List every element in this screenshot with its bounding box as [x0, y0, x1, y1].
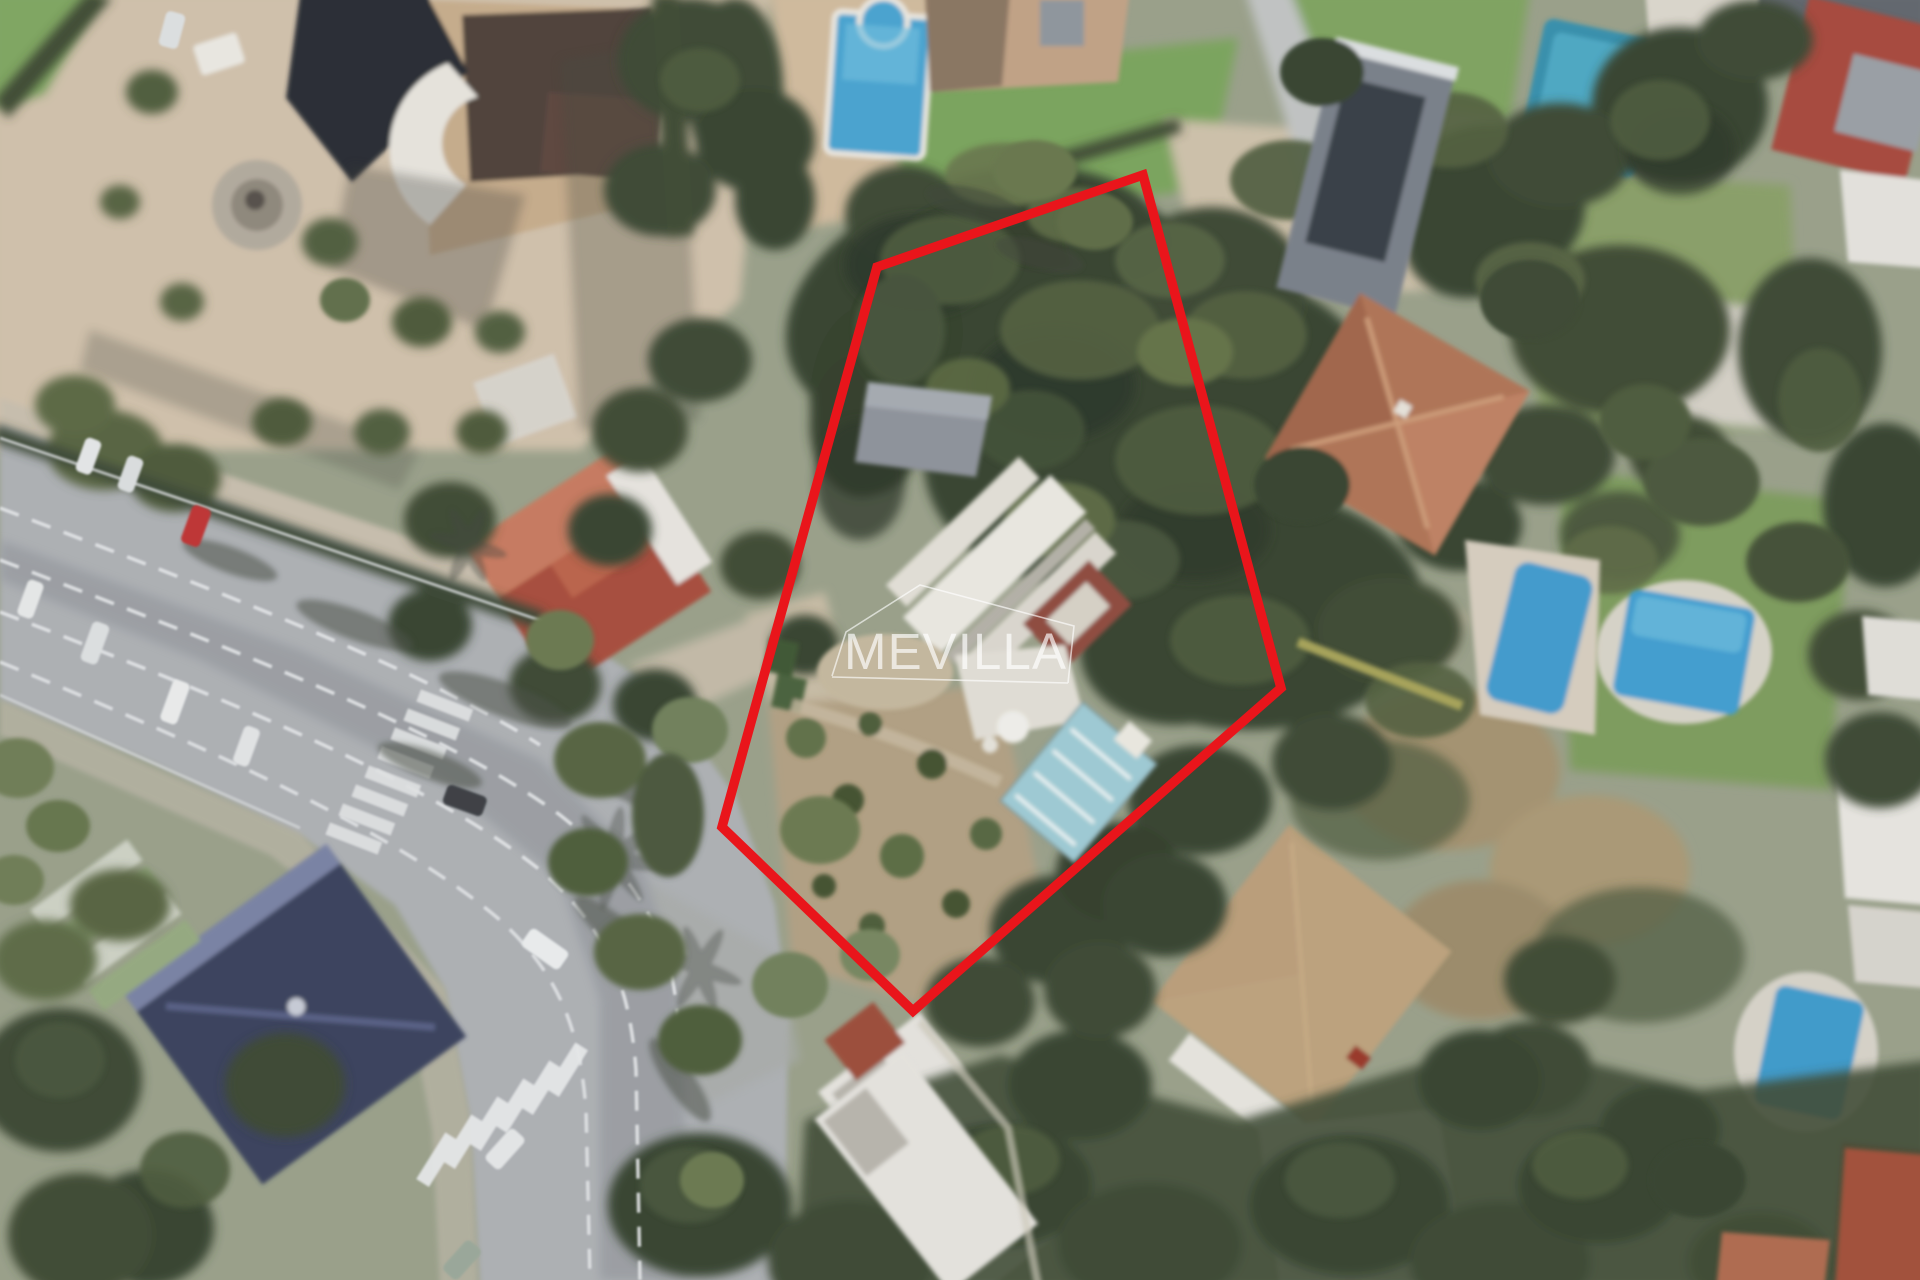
svg-text:MEVILLA: MEVILLA [844, 623, 1066, 680]
